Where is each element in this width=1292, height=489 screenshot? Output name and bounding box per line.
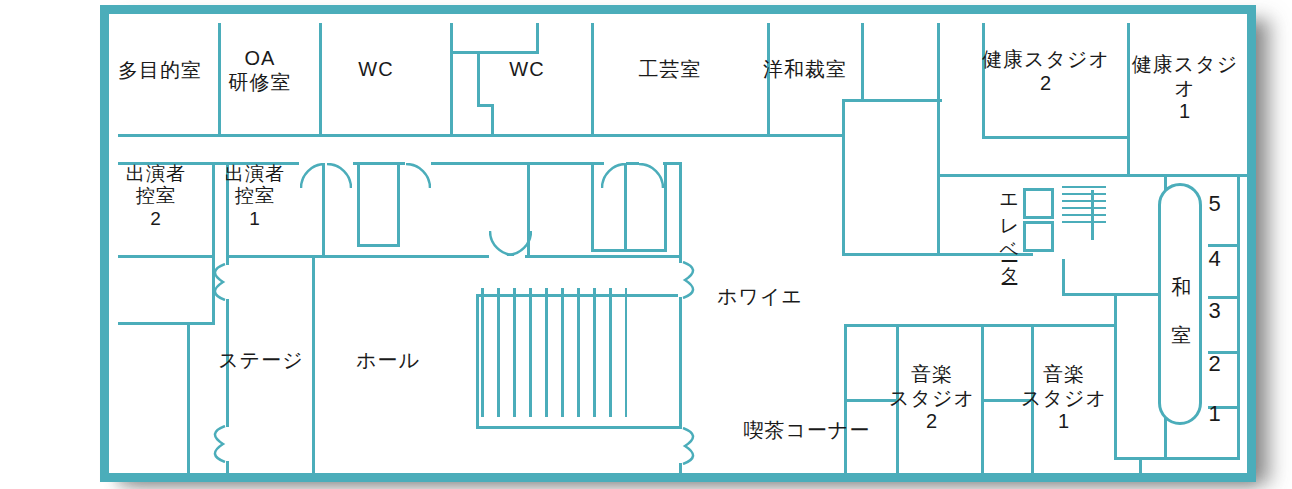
double-door-icon	[210, 425, 226, 463]
double-door-icon	[682, 427, 698, 465]
wall	[842, 99, 942, 102]
wall	[450, 23, 453, 136]
wall	[591, 23, 594, 136]
elevator-car	[1023, 221, 1054, 252]
wall	[450, 51, 539, 54]
room-label-japanese-room: 和室	[1169, 259, 1193, 357]
room-label-health-studio2: 健康スタジオ 2	[982, 48, 1110, 95]
tatami-room-number-3: 3	[1208, 298, 1221, 324]
room-label-wc1: WC	[358, 58, 393, 82]
room-label-cafe: 喫茶コーナー	[744, 419, 871, 443]
wall	[591, 162, 594, 252]
room-label-stage: ステージ	[218, 349, 303, 373]
wall	[476, 294, 479, 429]
wall	[491, 104, 494, 136]
elevator-car	[1023, 188, 1054, 219]
tatami-room-number-1: 1	[1208, 401, 1221, 427]
hall-seating-hatch	[481, 288, 627, 417]
double-door-icon	[210, 263, 226, 301]
wall	[536, 23, 539, 54]
staircase-icon	[1062, 186, 1106, 226]
wall	[842, 99, 845, 256]
wall	[118, 134, 845, 137]
door-arc-icon	[405, 163, 431, 189]
wall	[118, 255, 215, 258]
wall	[937, 174, 1256, 177]
floorplan-canvas: 多目的室 OA 研修室 WC WC 工芸室 洋和裁室 健康スタジオ 2 健康スタ…	[0, 0, 1292, 489]
room-label-craft: 工芸室	[639, 58, 702, 82]
wall	[226, 255, 682, 258]
wall	[591, 249, 667, 252]
wall	[981, 324, 984, 482]
door-arc-icon	[506, 230, 532, 256]
wall	[1127, 23, 1130, 177]
wall	[937, 23, 940, 256]
room-label-sewing: 洋和裁室	[763, 58, 847, 82]
wall	[844, 324, 847, 482]
wall	[397, 162, 400, 247]
wall	[1139, 457, 1142, 482]
room-label-oa-training: OA 研修室	[229, 47, 292, 94]
wall	[982, 136, 1130, 139]
wall	[477, 53, 480, 107]
wall	[476, 426, 682, 429]
room-label-music-studio1: 音楽 スタジオ 1	[1021, 363, 1107, 434]
tatami-room-number-4: 4	[1208, 246, 1221, 272]
tatami-room-number-5: 5	[1208, 191, 1221, 217]
room-label-performer-room1: 出演者 控室 1	[225, 163, 285, 230]
room-label-health-studio1: 健康スタジオ 1	[1132, 53, 1239, 124]
wall	[1114, 293, 1117, 460]
room-label-music-studio2: 音楽 スタジオ 2	[889, 363, 975, 434]
room-label-performer-room2: 出演者 控室 2	[126, 163, 186, 230]
wall	[1114, 457, 1240, 460]
double-door-icon	[682, 261, 698, 299]
wall	[1237, 174, 1240, 460]
room-label-elevator: エレベーター	[998, 183, 1020, 275]
room-label-foyer: ホワイエ	[717, 285, 803, 309]
wall	[1062, 259, 1065, 296]
wall	[218, 23, 221, 136]
room-label-hall: ホール	[356, 349, 420, 373]
wall	[118, 162, 682, 165]
wall	[118, 322, 215, 325]
room-label-multipurpose: 多目的室	[118, 59, 202, 83]
wall	[319, 23, 322, 136]
room-label-wc2: WC	[509, 58, 544, 82]
wall	[664, 162, 667, 252]
wall	[861, 23, 864, 102]
door-arc-icon	[326, 163, 352, 189]
door-arc-icon	[638, 163, 664, 189]
wall	[312, 255, 315, 482]
door-arc-icon	[300, 163, 326, 189]
wall	[187, 322, 190, 482]
door-arc-icon	[601, 163, 627, 189]
tatami-room-number-2: 2	[1208, 351, 1221, 377]
wall	[357, 244, 400, 247]
wall	[357, 162, 360, 247]
